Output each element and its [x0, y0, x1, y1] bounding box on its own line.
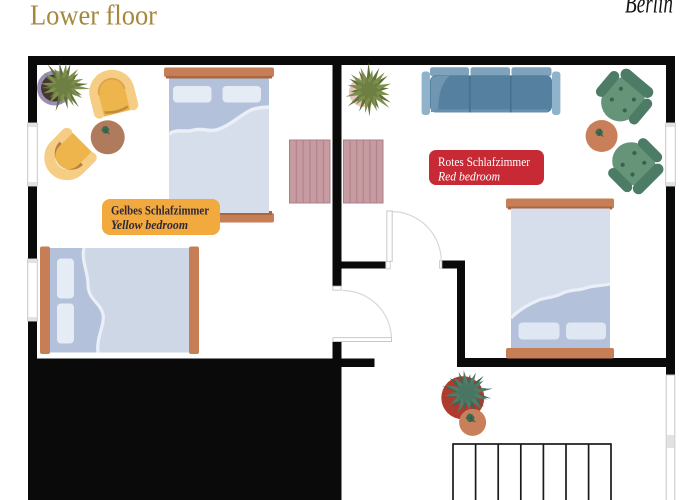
- svg-text:Berlin: Berlin: [625, 0, 673, 20]
- svg-text:Gelbes Schlafzimmer: Gelbes Schlafzimmer: [111, 204, 209, 218]
- svg-text:Rotes Schlafzimmer: Rotes Schlafzimmer: [438, 155, 531, 169]
- svg-text:Yellow bedroom: Yellow bedroom: [111, 218, 188, 232]
- svg-text:Lower floor: Lower floor: [30, 1, 158, 32]
- svg-text:Red bedroom: Red bedroom: [437, 170, 500, 184]
